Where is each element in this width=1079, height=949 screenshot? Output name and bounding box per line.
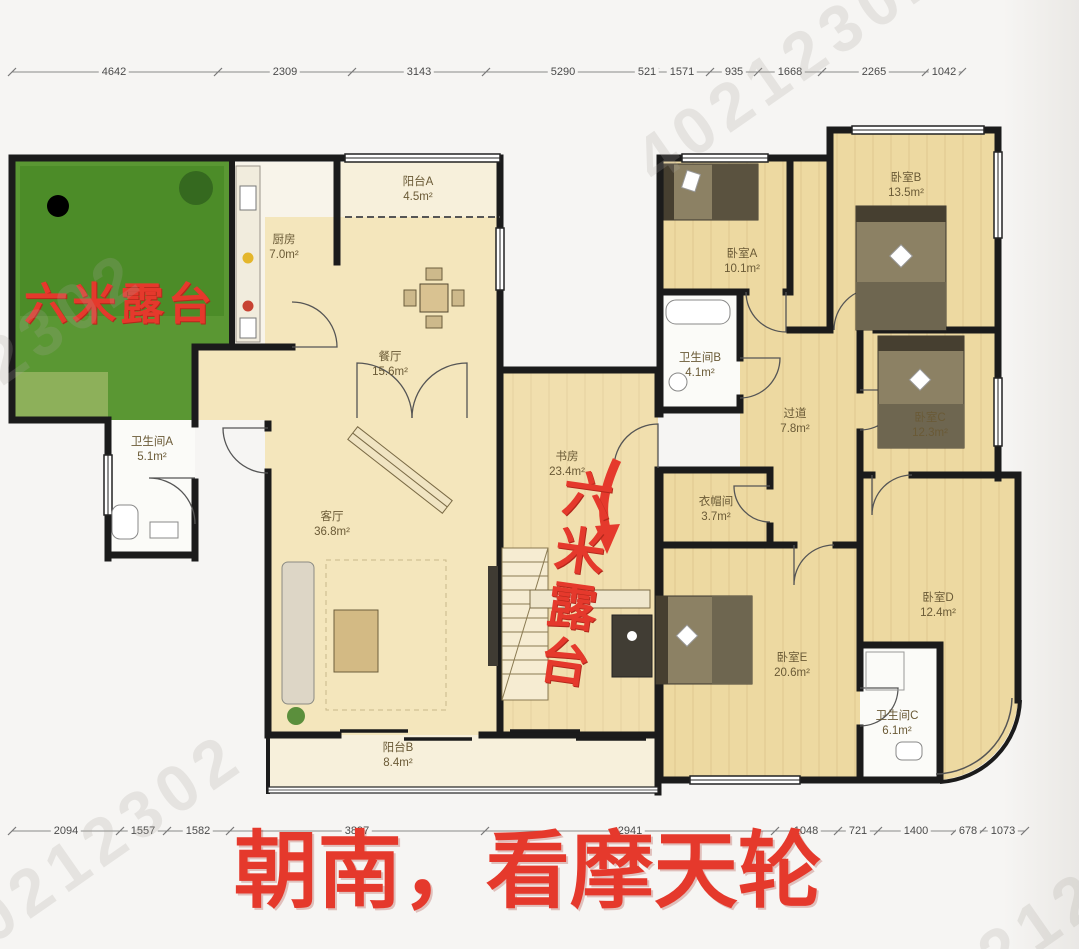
room-name: 卧室D [920,591,956,606]
room-area: 5.1m² [131,450,173,465]
room-label-balcony-a: 阳台A 4.5m² [403,175,434,205]
room-area: 12.3m² [912,426,948,441]
room-label-dining: 餐厅 15.6m² [372,350,408,380]
room-name: 过道 [780,407,809,422]
room-label-corridor: 过道 7.8m² [780,407,809,437]
dim-bottom-2: 1582 [183,825,213,837]
room-name: 卫生间C [876,709,919,724]
room-label-kitchen: 厨房 7.0m² [269,233,298,263]
room-name: 卧室A [724,247,760,262]
room-name: 卧室C [912,411,948,426]
room-name: 衣帽间 [699,495,734,510]
dim-top-8: 2265 [859,66,889,78]
room-label-bedroom-b: 卧室B 13.5m² [888,171,924,201]
room-label-bath-c: 卫生间C 6.1m² [876,709,919,739]
dim-bottom-6: 721 [846,825,870,837]
room-label-bath-a: 卫生间A 5.1m² [131,435,173,465]
room-name: 厨房 [269,233,298,248]
kitchen-stove [243,253,254,264]
bed-bedroom-e [656,596,752,684]
room-area: 36.8m² [314,525,350,540]
room-name: 卫生间A [131,435,173,450]
dim-top-6: 935 [722,66,746,78]
bed-bedroom-b [856,206,946,330]
room-name: 阳台A [403,175,434,190]
kitchen-sink [240,186,256,210]
room-name: 卫生间B [679,351,721,366]
dim-bottom-8: 678 [956,825,980,837]
room-name: 阳台B [383,741,414,756]
room-name: 卧室E [774,651,810,666]
dim-bottom-1: 1557 [128,825,158,837]
room-label-bedroom-e: 卧室E 20.6m² [774,651,810,681]
dim-bottom-7: 1400 [901,825,931,837]
dim-bottom-9: 1073 [988,825,1018,837]
dim-top-4: 521 [635,66,659,78]
room-area: 12.4m² [920,606,956,621]
room-name: 书房 [549,450,585,465]
room-label-living: 客厅 36.8m² [314,510,350,540]
room-area: 15.6m² [372,365,408,380]
room-label-closet: 衣帽间 3.7m² [699,495,734,525]
dim-top-5: 1571 [667,66,697,78]
room-area: 8.4m² [383,756,414,771]
room-area: 7.8m² [780,422,809,437]
room-area: 20.6m² [774,666,810,681]
room-area: 4.1m² [679,366,721,381]
room-area: 6.1m² [876,724,919,739]
room-area: 7.0m² [269,248,298,263]
dim-top-7: 1668 [775,66,805,78]
dim-top-1: 2309 [270,66,300,78]
room-name: 餐厅 [372,350,408,365]
floorplan-image: 4642 2309 3143 5290 521 1571 935 1668 22… [0,0,1079,949]
dim-top-9: 1042 [929,66,959,78]
dim-top-3: 5290 [548,66,578,78]
bed-bedroom-a [664,164,758,220]
room-area: 4.5m² [403,190,434,205]
study-cabinet [612,615,652,677]
dim-bottom-0: 2094 [51,825,81,837]
tv-cabinet [488,566,498,666]
room-label-bedroom-a: 卧室A 10.1m² [724,247,760,277]
room-label-bath-b: 卫生间B 4.1m² [679,351,721,381]
coffee-table [334,610,378,672]
sofa [282,562,314,704]
dim-top-0: 4642 [99,66,129,78]
terrace-tree [179,171,213,205]
room-area: 13.5m² [888,186,924,201]
room-label-bedroom-d: 卧室D 12.4m² [920,591,956,621]
room-label-balcony-b: 阳台B 8.4m² [383,741,414,771]
room-area: 10.1m² [724,262,760,277]
bottom-caption: 朝南，看摩天轮 [234,804,822,925]
floor-balcony-b [268,735,658,790]
room-area: 3.7m² [699,510,734,525]
room-label-bedroom-c: 卧室C 12.3m² [912,411,948,441]
plant [287,707,305,725]
room-name: 客厅 [314,510,350,525]
terrace-annotation: 六米露台 [24,268,216,332]
bath-a-toilet [112,505,138,539]
dim-top-2: 3143 [404,66,434,78]
room-name: 卧室B [888,171,924,186]
bath-b-tub [666,300,730,324]
